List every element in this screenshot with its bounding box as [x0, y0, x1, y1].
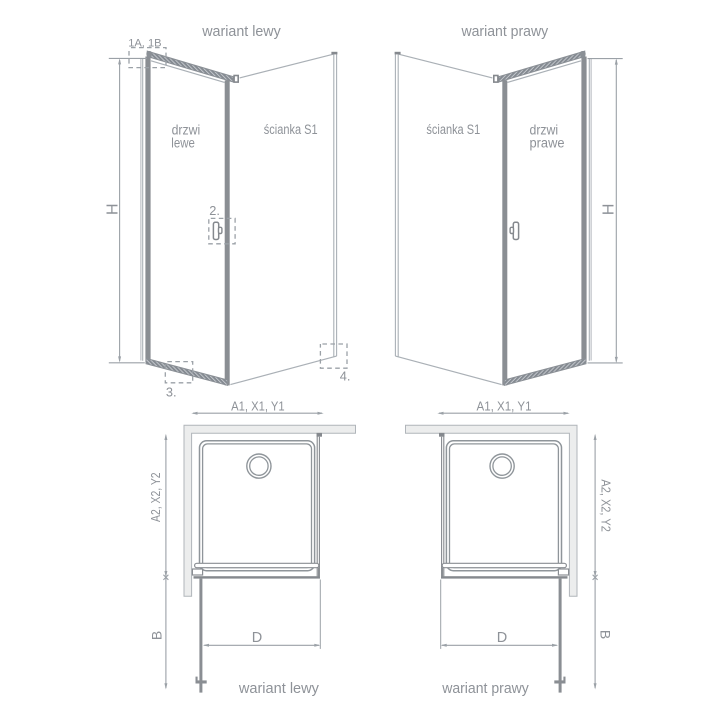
svg-text:A1, X1, Y1: A1, X1, Y1 — [231, 400, 285, 414]
svg-text:ścianka S1: ścianka S1 — [264, 122, 318, 137]
svg-text:3.: 3. — [166, 384, 177, 399]
svg-text:D: D — [497, 630, 507, 646]
svg-text:B: B — [148, 631, 164, 640]
svg-text:2.: 2. — [209, 203, 220, 218]
svg-text:A1, X1, Y1: A1, X1, Y1 — [477, 400, 532, 414]
svg-text:D: D — [252, 630, 262, 646]
svg-text:prawe: prawe — [530, 135, 565, 150]
svg-text:B: B — [597, 630, 613, 639]
svg-text:H: H — [601, 204, 618, 216]
svg-text:A2, X2, Y2: A2, X2, Y2 — [149, 472, 163, 522]
svg-text:A2, X2, Y2: A2, X2, Y2 — [598, 479, 612, 532]
svg-text:wariant lewy: wariant lewy — [238, 680, 320, 697]
svg-text:4.: 4. — [340, 369, 351, 384]
svg-text:H: H — [105, 203, 122, 215]
svg-text:wariant prawy: wariant prawy — [441, 680, 529, 697]
svg-text:wariant lewy: wariant lewy — [201, 23, 281, 40]
svg-text:ścianka S1: ścianka S1 — [426, 122, 480, 137]
svg-text:wariant prawy: wariant prawy — [461, 23, 549, 40]
svg-text:lewe: lewe — [171, 135, 195, 150]
svg-text:1A, 1B: 1A, 1B — [128, 38, 161, 50]
